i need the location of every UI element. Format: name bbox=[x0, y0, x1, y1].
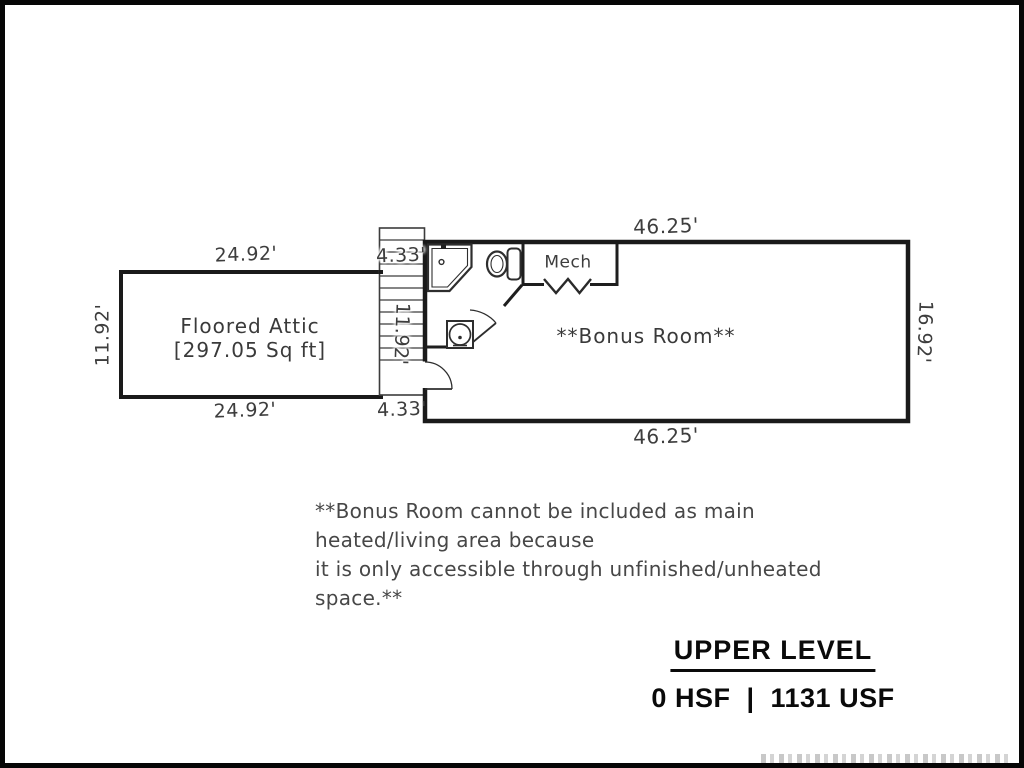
sink-drain-dot bbox=[458, 336, 462, 340]
note-line-1: **Bonus Room cannot be included as main … bbox=[315, 497, 875, 555]
watermark-smudge bbox=[761, 754, 1013, 763]
sink-fixture bbox=[447, 321, 473, 348]
stairs-dim-top: 4.33' bbox=[376, 246, 427, 267]
bonus-dim-right: 16.92' bbox=[913, 300, 934, 363]
shower-head-mark bbox=[441, 245, 446, 250]
stairs-dim-bottom: 4.33' bbox=[377, 400, 428, 421]
attic-dim-left: 11.92' bbox=[94, 304, 113, 367]
stairs-dim-height: 11.92' bbox=[390, 302, 411, 365]
landing-doorway-gap bbox=[420, 362, 430, 389]
area-summary: 0 HSF | 1131 USF bbox=[651, 683, 894, 714]
attic-area-label: [297.05 Sq ft] bbox=[174, 340, 326, 360]
note-line-2: it is only accessible through unfinished… bbox=[315, 555, 875, 613]
level-summary-block: UPPER LEVEL 0 HSF | 1131 USF bbox=[651, 635, 894, 714]
level-title: UPPER LEVEL bbox=[671, 635, 876, 672]
attic-room-name: Floored Attic bbox=[180, 316, 319, 336]
bonus-dim-top: 46.25' bbox=[633, 215, 699, 237]
attic-dim-bottom: 24.92' bbox=[213, 400, 276, 421]
bonus-room-label: **Bonus Room** bbox=[556, 326, 735, 346]
bonus-room-note: **Bonus Room cannot be included as main … bbox=[315, 497, 875, 613]
attic-dim-top: 24.92' bbox=[214, 244, 277, 265]
bonus-dim-bottom: 46.25' bbox=[633, 425, 699, 447]
floorplan-page: 24.92' 24.92' 11.92' Floored Attic [297.… bbox=[0, 0, 1024, 768]
mech-closet-label: Mech bbox=[544, 255, 591, 272]
